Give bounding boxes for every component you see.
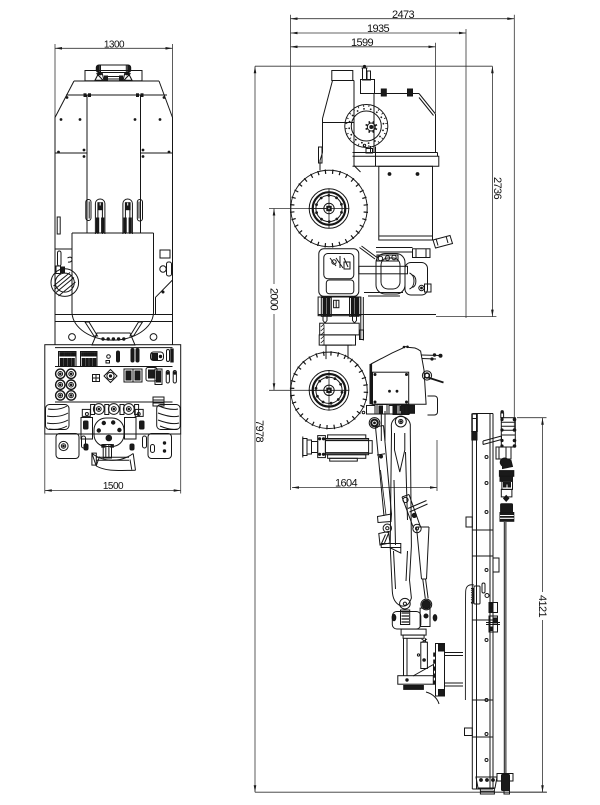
svg-text:4121: 4121 — [536, 595, 548, 618]
svg-text:2000: 2000 — [268, 288, 280, 311]
